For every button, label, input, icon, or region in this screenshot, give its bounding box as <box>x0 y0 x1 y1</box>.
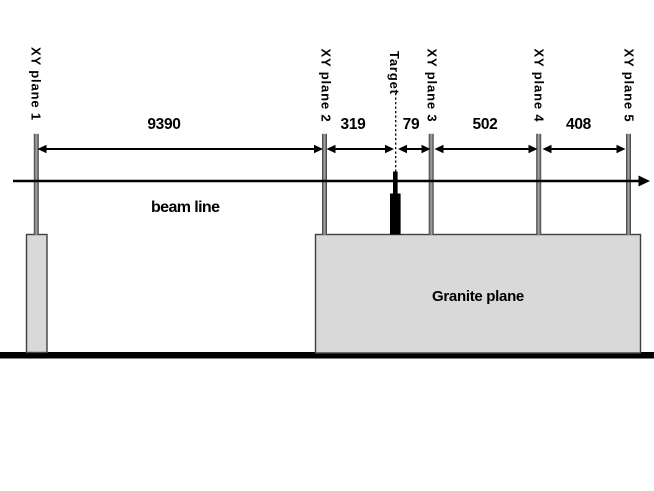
svg-text:XY plane 3: XY plane 3 <box>425 49 440 123</box>
svg-text:XY plane 4: XY plane 4 <box>532 49 547 123</box>
svg-text:408: 408 <box>566 116 592 133</box>
svg-text:XY plane 2: XY plane 2 <box>319 49 334 123</box>
svg-text:319: 319 <box>341 116 367 133</box>
svg-text:79: 79 <box>403 116 420 133</box>
svg-text:Target: Target <box>387 51 402 95</box>
svg-text:Granite plane: Granite plane <box>432 288 524 305</box>
svg-text:502: 502 <box>473 116 498 133</box>
svg-text:9390: 9390 <box>147 116 180 133</box>
svg-text:XY plane 5: XY plane 5 <box>622 49 637 123</box>
svg-text:XY plane 1: XY plane 1 <box>29 47 44 121</box>
svg-text:beam line: beam line <box>151 199 220 216</box>
